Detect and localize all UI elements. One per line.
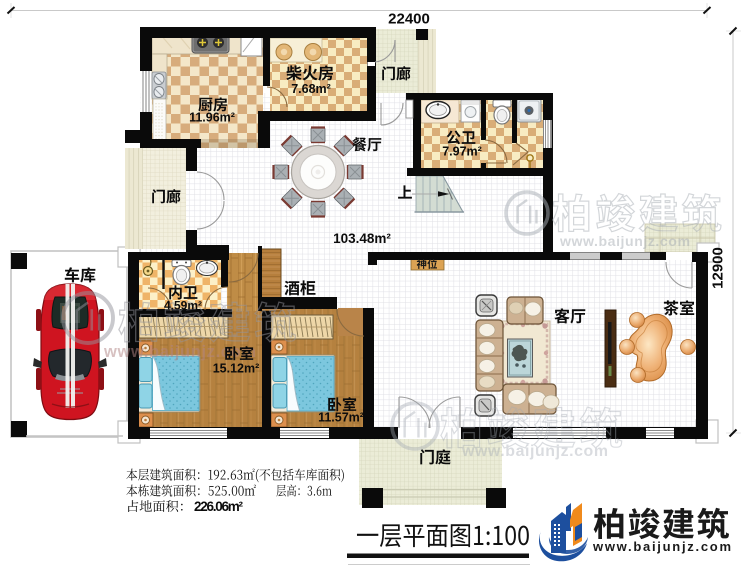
svg-text:22400: 22400 (388, 11, 430, 28)
svg-text:11.96m²: 11.96m² (189, 111, 235, 125)
svg-text:226.06m²: 226.06m² (194, 499, 244, 514)
svg-text:103.48m²: 103.48m² (333, 231, 391, 246)
svg-text:www.baijunjz.com: www.baijunjz.com (103, 343, 256, 361)
svg-text:11.57m²: 11.57m² (318, 411, 364, 425)
svg-text:www.baijunjz.com: www.baijunjz.com (461, 443, 608, 460)
svg-text:7.68m²: 7.68m² (291, 82, 331, 96)
svg-text:www.baijunjz.com: www.baijunjz.com (559, 233, 690, 249)
svg-text:12900: 12900 (710, 247, 727, 289)
svg-text:4.59m²: 4.59m² (164, 299, 202, 313)
svg-text:15.12m²: 15.12m² (213, 362, 260, 376)
svg-text:7.97m²: 7.97m² (442, 145, 482, 159)
svg-text:www.baijunjz.com: www.baijunjz.com (592, 539, 731, 554)
